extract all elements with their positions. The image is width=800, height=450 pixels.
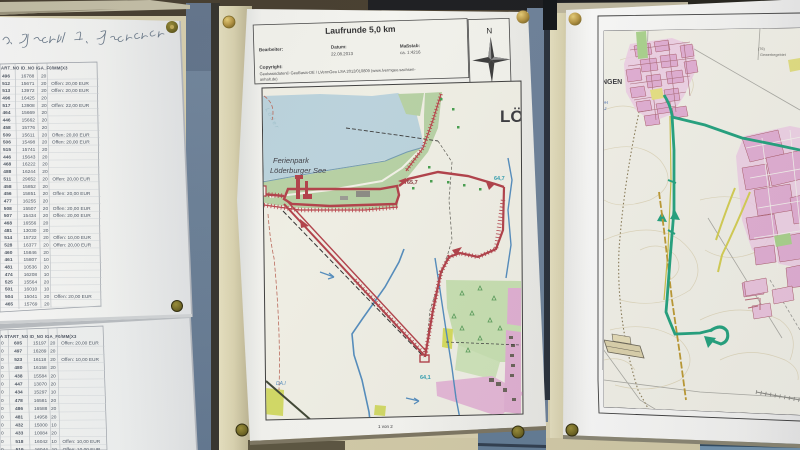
svg-text:Bearbeiter:: Bearbeiter:	[259, 47, 284, 53]
svg-text:05181604210Offen: 10,00 EUR: 05181604210Offen: 10,00 EUR	[1, 439, 101, 445]
svg-text:DA.I: DA.I	[276, 381, 286, 387]
svg-text:NGEN: NGEN	[602, 79, 622, 86]
svg-text:64,1: 64,1	[420, 375, 431, 381]
svg-text:Maßstab:: Maßstab:	[400, 43, 421, 49]
svg-text:Löderburger See: Löderburger See	[270, 166, 326, 175]
svg-text:Copyright:: Copyright:	[259, 64, 283, 70]
svg-text:05231611820Offen: 10,00 EUR: 05231611820Offen: 10,00 EUR	[1, 357, 100, 363]
svg-text:64,7: 64,7	[494, 176, 505, 182]
svg-text:(76): (76)	[758, 47, 765, 51]
svg-text:Ferienpark: Ferienpark	[273, 156, 310, 165]
svg-text:06051519720Offen: 20,00 EUR: 06051519720Offen: 20,00 EUR	[1, 341, 99, 347]
svg-text:anhalt.de): anhalt.de)	[260, 76, 279, 82]
svg-text:22.08.2013: 22.08.2013	[331, 51, 354, 57]
svg-text:Datum:: Datum:	[331, 44, 347, 49]
svg-text:65,7: 65,7	[407, 180, 418, 186]
svg-text:LÖ: LÖ	[500, 107, 524, 126]
svg-text:ART_NO ID_NO IGA_F0/MM(X3: ART_NO ID_NO IGA_F0/MM(X3	[1, 66, 68, 71]
svg-text:Gewerbegebiet: Gewerbegebiet	[760, 53, 787, 57]
svg-text:1 von 2: 1 von 2	[378, 424, 393, 429]
svg-text:Laufrunde 5,0 km: Laufrunde 5,0 km	[325, 24, 396, 36]
svg-text:ca. 1:4216: ca. 1:4216	[400, 50, 421, 56]
svg-text:N: N	[486, 26, 492, 35]
svg-text:A START_NO ID_NO IGA_F0/MM(X3: A START_NO ID_NO IGA_F0/MM(X3	[0, 334, 77, 339]
